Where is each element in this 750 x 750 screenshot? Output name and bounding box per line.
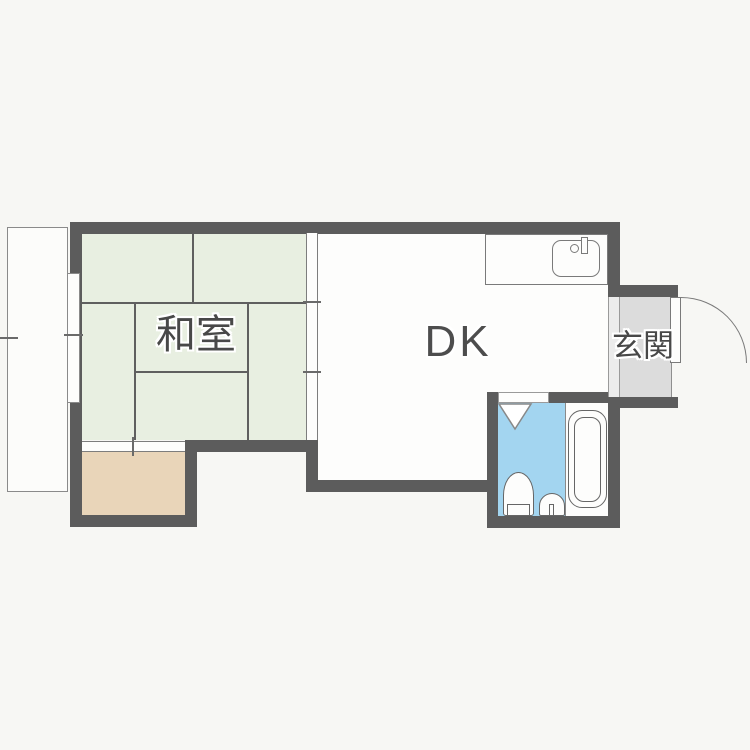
wall-right-lower — [608, 397, 620, 528]
sliding-door-tick — [303, 301, 321, 303]
closet — [82, 452, 185, 515]
washitsu-label: 和室 — [156, 302, 236, 360]
wall-dk-bottom — [306, 480, 498, 492]
bathroom-door-swing-icon — [497, 402, 533, 432]
dk-label: DK — [424, 317, 491, 367]
entry-door-swing-icon — [681, 297, 747, 363]
sliding-door-tick — [303, 371, 321, 373]
wall-closet-bottom — [70, 515, 197, 527]
wall-bath-bottom — [487, 516, 620, 528]
tatami-line — [134, 302, 136, 440]
balcony-tick — [0, 337, 18, 339]
closet-door-tick — [132, 437, 134, 456]
wall-washitsu-bottom — [185, 440, 318, 452]
wall-genkan-bottom — [608, 397, 678, 408]
window — [67, 273, 80, 403]
hand-basin-faucet-icon — [549, 504, 554, 516]
balcony — [7, 227, 68, 492]
tatami-line — [247, 302, 249, 440]
sink-faucet-icon — [581, 237, 588, 254]
toilet-tank — [507, 504, 530, 516]
tatami-line — [135, 371, 248, 373]
sliding-door — [306, 233, 318, 440]
bathtub-inner — [574, 417, 601, 502]
sink-drain-icon — [570, 244, 579, 253]
wall-closet-right — [185, 441, 197, 527]
tatami-line — [192, 234, 194, 304]
wall-top — [70, 222, 620, 234]
floorplan-canvas: { "floorplan": { "rooms": { "washitsu": … — [0, 0, 750, 750]
wall-genkan-top — [608, 285, 678, 297]
window-tick — [64, 334, 83, 336]
genkan-label: 玄関 — [612, 321, 674, 366]
